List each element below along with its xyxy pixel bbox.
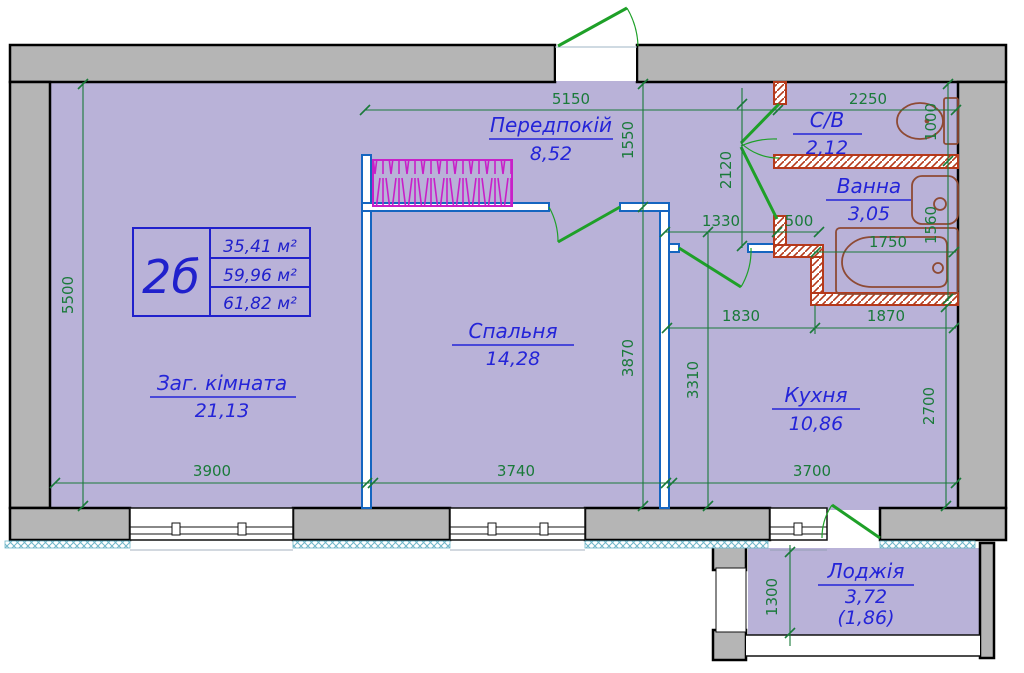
window-living xyxy=(130,508,293,540)
dim-bath-wall: 500 xyxy=(785,212,814,230)
partition-hall-kitchen-stub-left xyxy=(669,244,679,252)
wc-area: 2,12 xyxy=(806,137,848,159)
loggia-area: 3,72 xyxy=(845,586,887,608)
bedroom-name: Спальня xyxy=(469,319,558,343)
door-entrance xyxy=(558,8,638,46)
partition-hall-kitchen-stub-right xyxy=(748,244,777,252)
kitchen-area: 10,86 xyxy=(789,413,843,435)
full-area: 61,82 м² xyxy=(223,294,297,314)
dim-tub-length: 1750 xyxy=(869,233,907,251)
unit-label: 2б xyxy=(142,250,200,304)
partition-hall-bedroom-right xyxy=(620,203,669,211)
loggia-post-right xyxy=(980,543,994,658)
dim-living-depth: 5500 xyxy=(59,276,77,314)
hall-name: Передпокій xyxy=(490,113,612,137)
dim-hall-opening: 1330 xyxy=(702,212,740,230)
wall-bottom-b xyxy=(293,508,450,540)
wet-wall-stub-top xyxy=(774,82,786,104)
dim-hall-width: 5150 xyxy=(552,90,590,108)
dim-kitchen-width: 3700 xyxy=(793,462,831,480)
loggia-pillar-bottom xyxy=(713,630,746,660)
loggia-name: Лоджія xyxy=(827,559,905,583)
floor-plan-drawing: 5150 2250 1550 3870 3310 1330 500 2120 1… xyxy=(0,0,1024,673)
dim-bedroom-depth: 3870 xyxy=(619,339,637,377)
hall-area: 8,52 xyxy=(530,143,572,165)
dim-wc-width: 2250 xyxy=(849,90,887,108)
wardrobe xyxy=(373,160,512,206)
sill-strip xyxy=(880,541,975,548)
entrance-opening xyxy=(555,46,637,81)
loggia-left-opening xyxy=(716,568,746,632)
dim-living-width: 3900 xyxy=(193,462,231,480)
wall-bottom-d xyxy=(585,508,770,540)
wall-right xyxy=(958,82,1006,508)
bath-area: 3,05 xyxy=(848,203,890,225)
sill-strip xyxy=(293,541,450,548)
wall-bottom-corner-left xyxy=(10,508,130,540)
wet-wall-wc-bath xyxy=(774,155,958,168)
wc-name: С/В xyxy=(810,108,844,132)
wall-bottom-f xyxy=(880,508,1006,540)
dim-kitchen-depth: 2700 xyxy=(920,387,938,425)
dim-hall-depth: 1550 xyxy=(619,121,637,159)
dim-bedroom-width: 3740 xyxy=(497,462,535,480)
sill-strip xyxy=(5,541,130,548)
dim-kitchen-hall-depth: 3310 xyxy=(684,361,702,399)
living-area-total: 35,41 м² xyxy=(223,237,297,257)
wall-left xyxy=(10,82,50,508)
total-area: 59,96 м² xyxy=(223,266,297,286)
wall-top-right xyxy=(637,45,1006,82)
window-bedroom xyxy=(450,508,585,540)
sill-strip xyxy=(585,541,768,548)
wet-wall-l1 xyxy=(774,245,823,257)
dim-wc-depth: 1000 xyxy=(922,103,940,141)
dim-hall-bottom-left: 1830 xyxy=(722,307,760,325)
wall-top-left xyxy=(10,45,555,82)
partition-bedroom-kitchen xyxy=(660,211,669,508)
dim-bath-doors-span: 2120 xyxy=(717,151,735,189)
bedroom-area: 14,28 xyxy=(486,348,540,370)
dim-bath-depth: 1560 xyxy=(922,206,940,244)
living-area: 21,13 xyxy=(195,400,249,422)
window-kitchen xyxy=(770,508,827,540)
loggia-rail xyxy=(746,635,980,656)
dim-loggia-depth: 1300 xyxy=(763,578,781,616)
kitchen-name: Кухня xyxy=(785,383,848,407)
living-name: Заг. кімната xyxy=(157,371,287,395)
dim-bath-bottom: 1870 xyxy=(867,307,905,325)
loggia-area-half: (1,86) xyxy=(837,607,894,629)
wet-wall-l2 xyxy=(811,257,823,293)
floor-plan-canvas: 5150 2250 1550 3870 3310 1330 500 2120 1… xyxy=(0,0,1024,673)
bath-name: Ванна xyxy=(837,174,901,198)
